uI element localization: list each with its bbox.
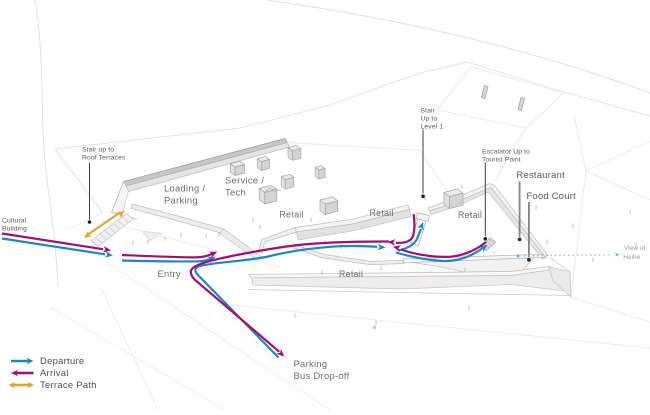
svg-text:Level 1: Level 1 <box>421 124 444 131</box>
svg-text:Retail: Retail <box>370 208 394 218</box>
svg-text:Retail: Retail <box>339 269 363 279</box>
svg-text:Bus Drop-off: Bus Drop-off <box>294 370 350 381</box>
svg-text:Arrival: Arrival <box>40 367 69 378</box>
svg-text:Tech: Tech <box>225 187 246 198</box>
svg-text:Cultural: Cultural <box>2 218 27 225</box>
svg-text:Restaurant: Restaurant <box>517 170 566 180</box>
svg-text:Service /: Service / <box>225 175 264 186</box>
svg-text:Retail: Retail <box>280 209 304 219</box>
svg-text:Stair up to: Stair up to <box>82 147 114 154</box>
svg-text:Entry: Entry <box>158 268 181 279</box>
svg-text:Tourist Point: Tourist Point <box>482 157 521 164</box>
svg-text:Building: Building <box>2 226 27 233</box>
svg-text:Escalator Up to: Escalator Up to <box>482 149 530 156</box>
svg-text:Up to: Up to <box>421 116 438 123</box>
svg-text:Roof Terraces: Roof Terraces <box>82 155 126 162</box>
svg-text:Heihe: Heihe <box>623 254 641 261</box>
svg-text:View of: View of <box>624 245 646 252</box>
svg-text:Parking: Parking <box>164 195 198 206</box>
svg-text:Stair: Stair <box>421 108 436 115</box>
svg-text:Food Court: Food Court <box>527 191 577 201</box>
svg-text:Terrace Path: Terrace Path <box>40 379 97 390</box>
svg-text:Retail: Retail <box>458 210 482 220</box>
svg-text:Departure: Departure <box>40 355 84 366</box>
svg-text:Parking: Parking <box>294 358 328 369</box>
svg-text:Loading /: Loading / <box>164 183 205 194</box>
